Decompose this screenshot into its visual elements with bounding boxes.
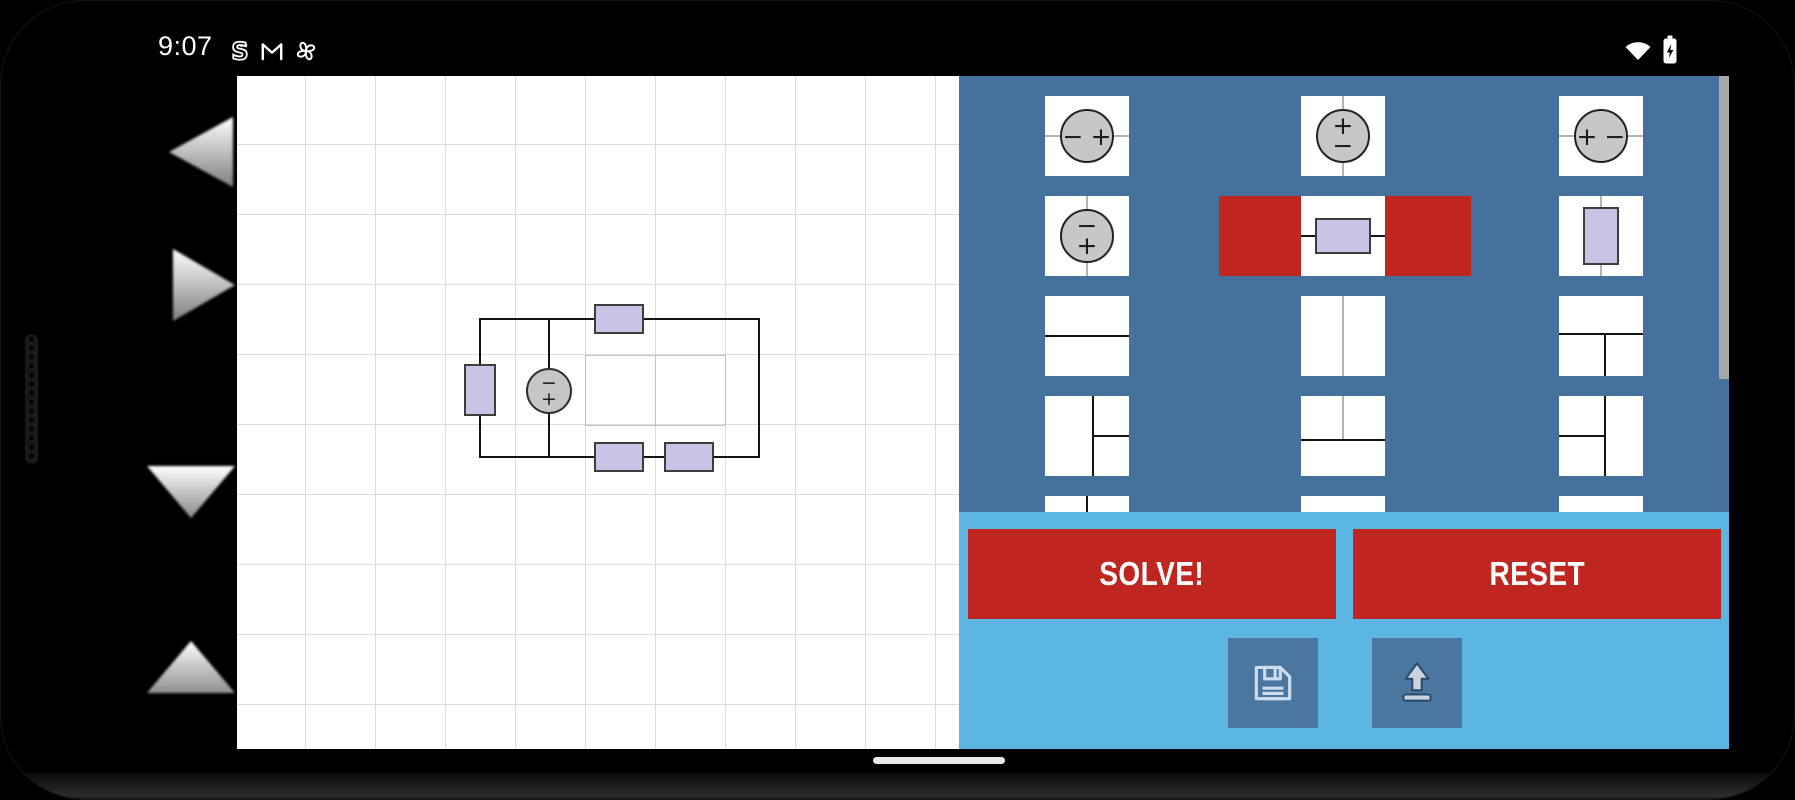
palette-scrollbar[interactable] <box>1719 76 1729 379</box>
scroll-right-arrow[interactable] <box>171 247 237 323</box>
phone-bottom-edge <box>9 773 1786 800</box>
plus-sign: + <box>1091 124 1112 149</box>
palette-tile-partial[interactable] <box>1559 496 1643 512</box>
palette-wire-vertical[interactable] <box>1301 296 1385 376</box>
save-button[interactable] <box>1228 638 1318 728</box>
speaker-grille <box>25 334 38 464</box>
wire-icon <box>1086 496 1088 512</box>
wire-icon <box>1092 435 1129 437</box>
wire-icon <box>1342 396 1344 440</box>
wire-icon <box>1342 296 1344 376</box>
resistor-bottom-2[interactable] <box>664 442 714 472</box>
palette-tile-partial-wire-vertical[interactable] <box>1045 496 1129 512</box>
palette-wire-tee-left[interactable] <box>1559 396 1643 476</box>
reset-button[interactable]: RESET <box>1353 529 1721 619</box>
palette-vsource-h-plus-minus[interactable]: + − <box>1559 96 1643 176</box>
screenshot-stage: 9:07 S <box>0 0 1795 800</box>
phone-frame: 9:07 S <box>0 0 1795 800</box>
clock: 9:07 <box>158 31 213 62</box>
resistor-top[interactable] <box>594 304 644 334</box>
voltage-source[interactable]: − + <box>526 368 572 414</box>
resistor-icon <box>1315 218 1371 254</box>
wire-icon <box>1604 333 1606 376</box>
voltage-source-icon: − + <box>1060 209 1114 263</box>
palette-vsource-h-minus-plus[interactable]: − + <box>1045 96 1129 176</box>
wire-icon <box>1559 435 1605 437</box>
plus-sign: + <box>1077 236 1098 256</box>
wire-icon <box>1301 439 1385 441</box>
highlighted-cells-divider <box>655 355 656 425</box>
palette-resistor-horizontal-selected[interactable] <box>1301 196 1385 276</box>
solve-button-label: SOLVE! <box>1100 555 1205 593</box>
upload-icon <box>1392 658 1442 708</box>
minus-sign: − <box>1605 124 1626 149</box>
wifi-icon <box>1623 37 1653 63</box>
s-bot-notification-icon: S <box>228 38 254 64</box>
home-indicator[interactable] <box>873 757 1005 764</box>
plus-sign: + <box>1577 124 1598 149</box>
palette-wire-horizontal[interactable] <box>1045 296 1129 376</box>
floppy-save-icon <box>1248 658 1298 708</box>
solve-button[interactable]: SOLVE! <box>968 529 1336 619</box>
upload-button[interactable] <box>1372 638 1462 728</box>
voltage-source-icon: − + <box>1060 109 1114 163</box>
resistor-bottom-1[interactable] <box>594 442 644 472</box>
component-palette: − + + − + − − + <box>959 76 1729 512</box>
svg-text:S: S <box>231 38 248 64</box>
palette-wire-tee-down[interactable] <box>1559 296 1643 376</box>
battery-charging-icon <box>1661 34 1679 65</box>
resistor-icon <box>1583 207 1619 265</box>
action-panel: SOLVE! RESET <box>959 512 1729 749</box>
pinwheel-notification-icon <box>293 38 319 64</box>
palette-vsource-v-plus-minus[interactable]: + − <box>1301 96 1385 176</box>
circuit-canvas[interactable]: − + <box>237 76 959 749</box>
reset-button-label: RESET <box>1489 555 1585 593</box>
resistor-left[interactable] <box>464 364 496 416</box>
minus-sign: − <box>1333 136 1354 156</box>
wire-icon <box>1045 335 1129 337</box>
plus-sign: + <box>541 391 557 407</box>
gmail-notification-icon <box>259 38 285 64</box>
scroll-left-arrow[interactable] <box>167 115 235 189</box>
voltage-source-icon: + − <box>1316 109 1370 163</box>
palette-tile-partial[interactable] <box>1301 496 1385 512</box>
palette-wire-tee-right[interactable] <box>1045 396 1129 476</box>
voltage-source-icon: + − <box>1574 109 1628 163</box>
scroll-up-arrow[interactable] <box>145 639 237 695</box>
scroll-down-arrow[interactable] <box>145 464 237 520</box>
palette-wire-tee-up[interactable] <box>1301 396 1385 476</box>
wire-right[interactable] <box>758 318 760 458</box>
wire-icon <box>1559 333 1643 335</box>
palette-vsource-v-minus-plus[interactable]: − + <box>1045 196 1129 276</box>
palette-resistor-vertical[interactable] <box>1559 196 1643 276</box>
minus-sign: − <box>1063 124 1084 149</box>
